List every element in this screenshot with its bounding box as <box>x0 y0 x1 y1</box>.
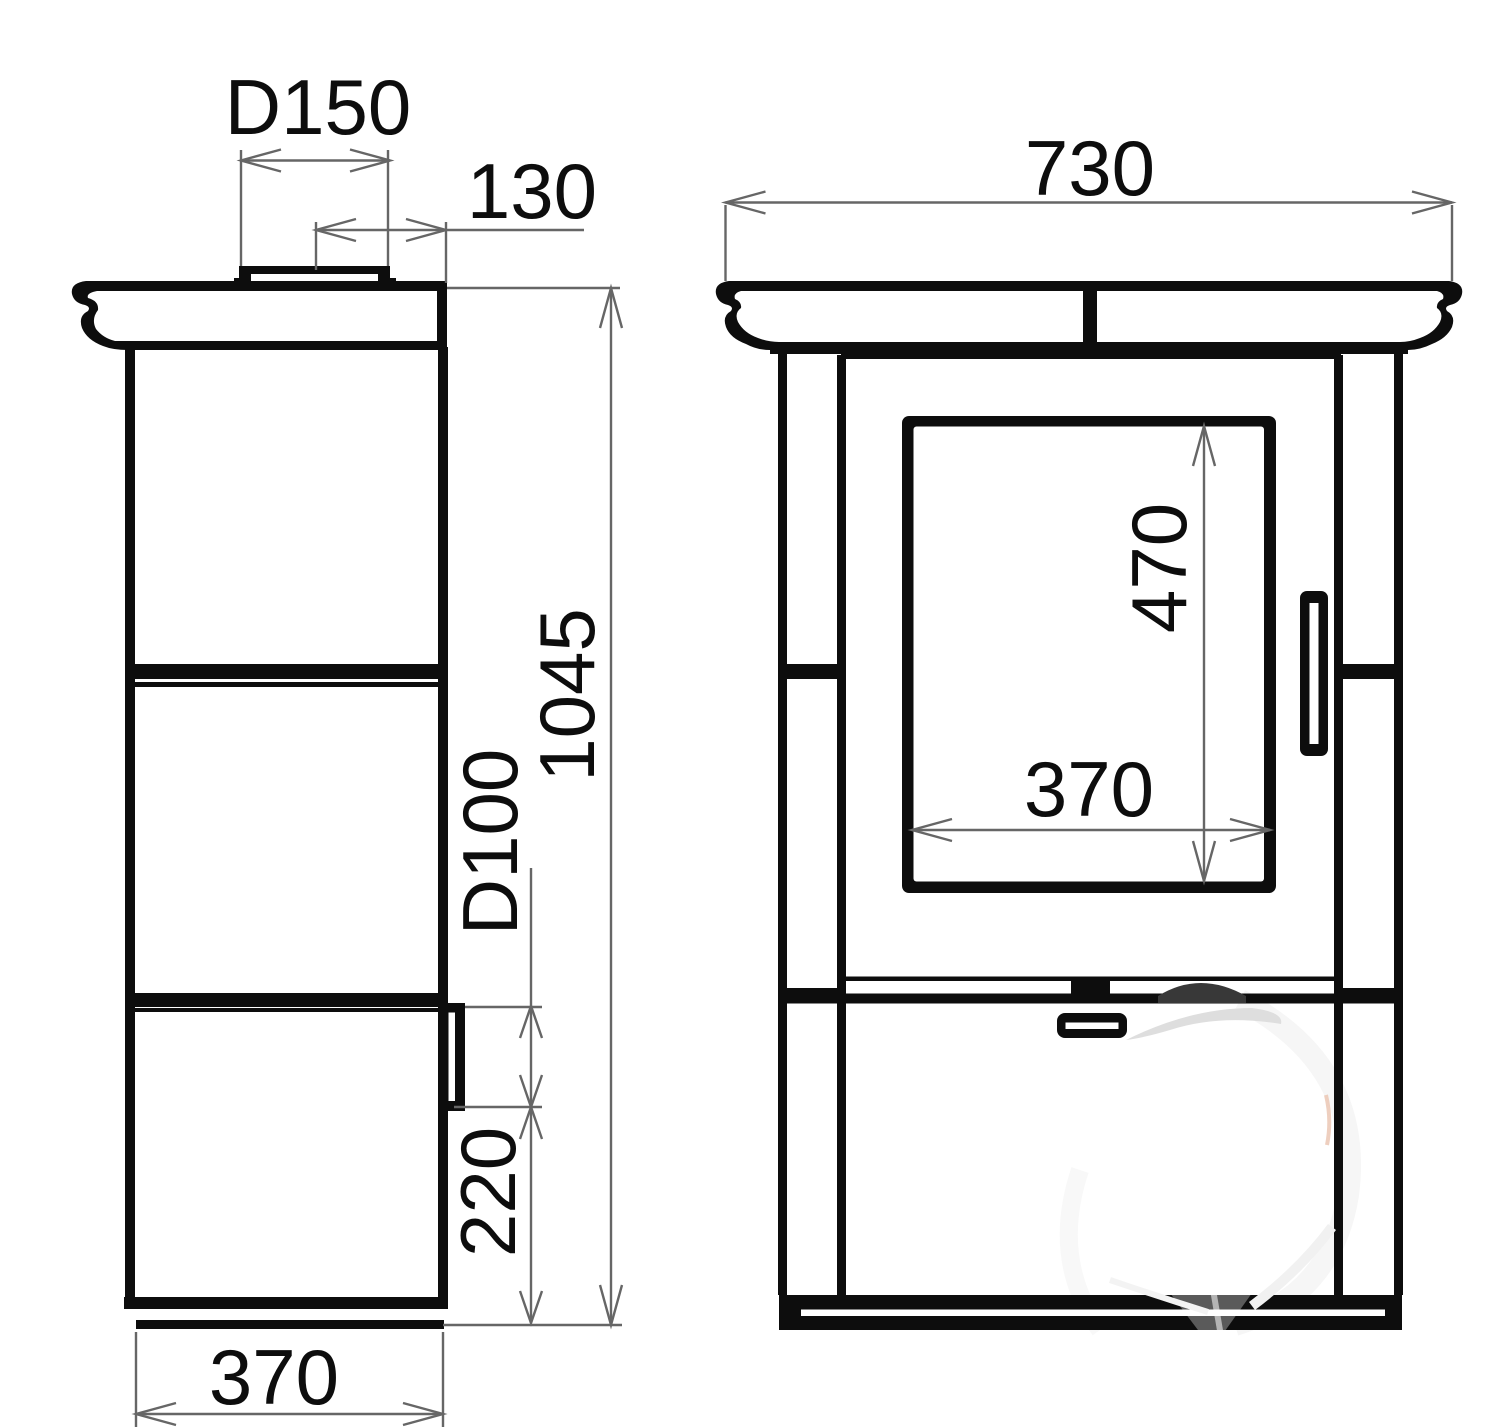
svg-text:220: 220 <box>444 1127 532 1257</box>
svg-text:D150: D150 <box>225 63 411 151</box>
svg-text:130: 130 <box>467 147 597 235</box>
svg-text:730: 730 <box>1025 124 1155 212</box>
svg-text:370: 370 <box>209 1333 339 1421</box>
svg-text:470: 470 <box>1115 503 1203 633</box>
svg-text:D100: D100 <box>446 749 534 935</box>
svg-text:1045: 1045 <box>523 608 611 782</box>
svg-text:370: 370 <box>1024 745 1154 833</box>
